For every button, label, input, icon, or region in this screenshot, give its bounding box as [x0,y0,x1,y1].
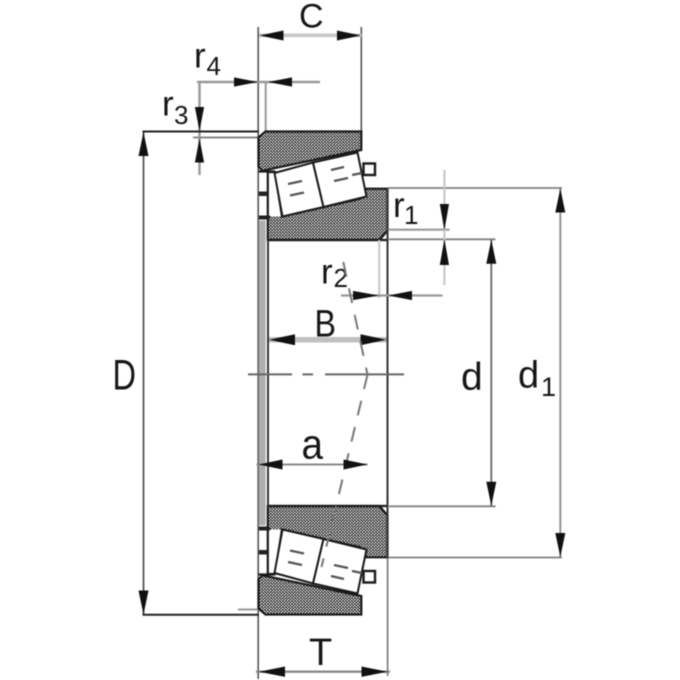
svg-text:1: 1 [404,200,418,230]
svg-text:d: d [461,356,483,399]
svg-text:T: T [309,632,332,674]
svg-text:2: 2 [334,263,348,293]
svg-text:4: 4 [207,51,221,81]
svg-text:C: C [299,0,324,36]
svg-text:a: a [302,421,324,468]
svg-text:r: r [321,253,333,292]
svg-text:d: d [518,355,539,397]
svg-text:3: 3 [174,100,188,130]
svg-text:r: r [194,37,206,76]
svg-text:B: B [315,304,337,346]
svg-text:1: 1 [541,372,556,402]
svg-text:r: r [162,85,174,124]
svg-text:D: D [113,352,137,400]
